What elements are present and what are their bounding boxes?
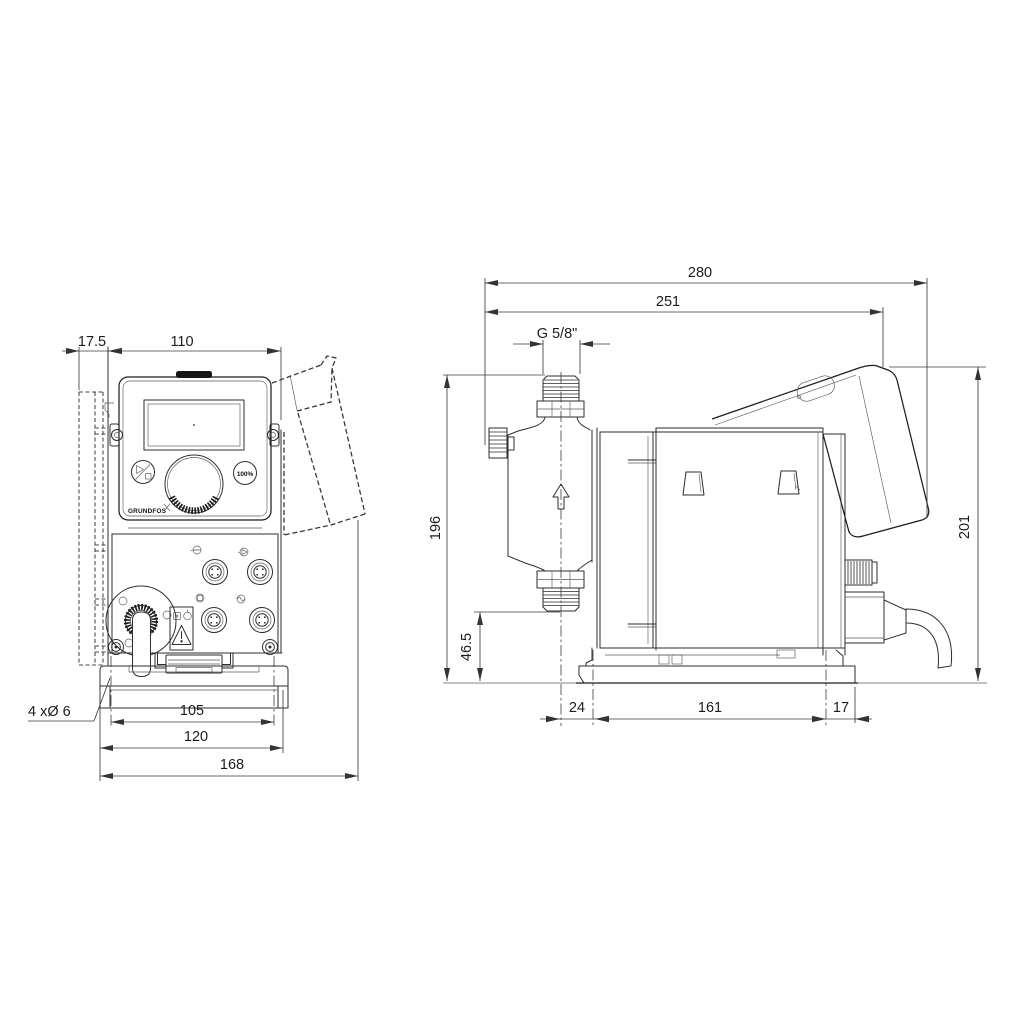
mains-cable — [906, 609, 952, 668]
dim-text: 201 — [957, 515, 973, 539]
dim-text: 251 — [656, 294, 680, 310]
hundred-percent-label: 100% — [237, 471, 254, 478]
foot-base-side — [576, 648, 858, 728]
signal-connectors — [190, 546, 275, 633]
mounting-holes-callout: 4 xØ 6 — [28, 678, 110, 721]
start-stop-icon — [136, 465, 152, 480]
dim-text: 196 — [428, 516, 444, 540]
io-symbol-icon — [238, 548, 248, 556]
panel-screw-left — [112, 430, 123, 441]
tilted-control-panel — [712, 365, 929, 536]
cable-gland — [845, 560, 952, 668]
dim-text: 46.5 — [459, 633, 475, 661]
click-wheel-knob[interactable] — [165, 455, 223, 513]
dim-wall-offset: 17.5 — [62, 334, 108, 390]
wall-hook — [683, 472, 704, 495]
label-symbol-icon — [184, 612, 192, 620]
top-latch — [176, 371, 212, 378]
din-clip — [672, 655, 682, 664]
side-view: 280 251 G 5/8" 196 46.5 201 — [428, 265, 987, 728]
technical-drawing-page: 100% GRUNDFOS — [0, 0, 1024, 1024]
din-clip — [659, 655, 669, 664]
connector-socket[interactable] — [250, 608, 275, 633]
flange-bolt-hole — [119, 597, 127, 605]
dim-text: 17 — [833, 700, 849, 716]
mounting-base-plate — [100, 666, 288, 708]
hundred-percent-button[interactable]: 100% — [234, 462, 257, 485]
io-symbol-icon — [196, 594, 204, 602]
thread-label: G 5/8" — [537, 326, 578, 342]
callout-text: 4 xØ 6 — [28, 704, 71, 720]
dim-connection-height: 46.5 — [459, 612, 560, 681]
connector-socket[interactable] — [202, 608, 227, 633]
head-clamp-section — [597, 428, 656, 648]
din-clip — [777, 650, 795, 658]
flange-bolt-hole — [125, 639, 133, 647]
dim-overall-depth: 280 — [485, 265, 927, 518]
dim-text: 280 — [688, 265, 712, 281]
gland-body — [845, 592, 884, 643]
power-cable — [133, 612, 151, 677]
io-symbol-icon — [237, 595, 245, 603]
mounting-latch — [155, 653, 233, 673]
bleed-valve-knob[interactable] — [489, 428, 507, 458]
label-symbol-icon — [174, 613, 181, 620]
housing-screw — [263, 640, 278, 655]
dim-text: 161 — [698, 700, 722, 716]
start-stop-button[interactable] — [132, 461, 155, 484]
motor-housing — [600, 428, 845, 655]
io-symbol-icon — [190, 546, 201, 554]
dim-connection-thread: G 5/8" — [513, 326, 610, 374]
rating-label — [170, 607, 193, 650]
control-panel: 100% GRUNDFOS — [112, 371, 279, 520]
dim-height: 196 — [428, 375, 545, 681]
brand-logo-text: GRUNDFOS — [128, 508, 167, 515]
wall-bracket-hidden-outline — [79, 392, 107, 665]
dim-text: 24 — [569, 700, 585, 716]
connector-socket[interactable] — [203, 560, 228, 585]
housing-screw — [109, 640, 124, 655]
dim-text: 17.5 — [78, 334, 106, 350]
dim-bottom-chain: 24 161 17 — [540, 687, 872, 723]
wall-hook — [778, 471, 800, 494]
connector-socket[interactable] — [248, 560, 273, 585]
dim-text: 105 — [180, 703, 204, 719]
gland-thread — [845, 560, 872, 585]
tilted-cover-hidden-outline — [272, 356, 365, 535]
front-view: 100% GRUNDFOS — [28, 334, 365, 781]
dosing-pump-dimension-drawing: 100% GRUNDFOS — [0, 0, 1024, 1024]
panel-screw-right — [268, 430, 279, 441]
display-screen — [144, 400, 244, 450]
dim-hole-spacing: 105 — [111, 703, 274, 722]
gland-cone — [884, 600, 906, 640]
dim-text: 168 — [220, 757, 244, 773]
brand-logo: GRUNDFOS — [128, 504, 170, 515]
dim-text: 120 — [184, 729, 208, 745]
dim-text: 110 — [170, 334, 193, 350]
dosing-head — [489, 372, 592, 726]
